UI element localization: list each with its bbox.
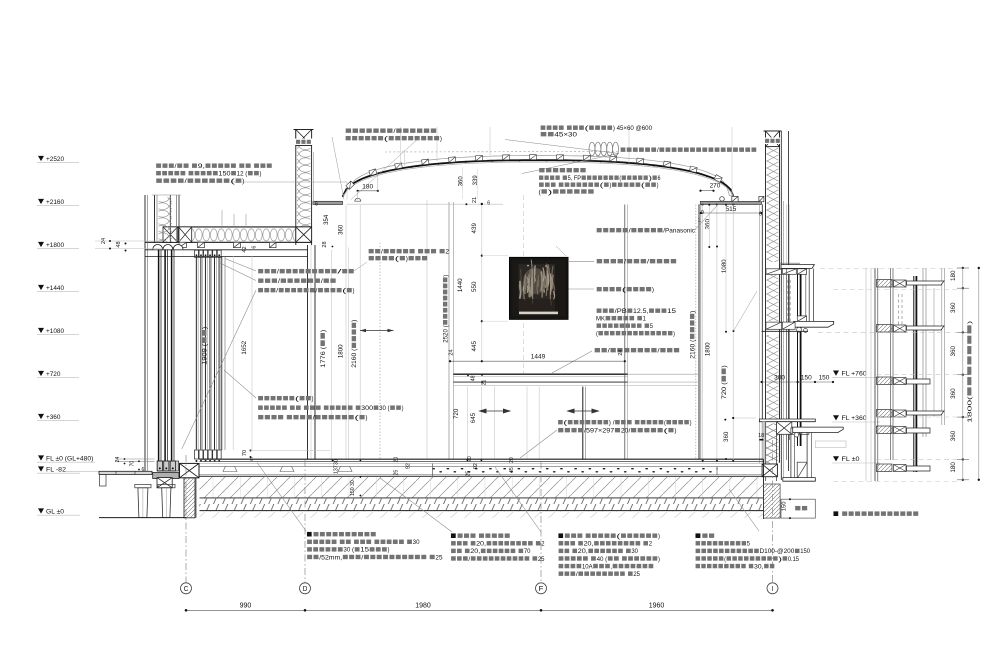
svg-text:2520 (: 2520 ( xyxy=(443,324,450,342)
svg-text:30: 30 xyxy=(631,548,638,555)
svg-text:42: 42 xyxy=(242,246,248,252)
svg-text:): ) xyxy=(968,321,974,324)
svg-text:30: 30 xyxy=(334,459,340,465)
svg-text:/597×297: /597×297 xyxy=(584,428,615,435)
svg-text:5, FP: 5, FP xyxy=(568,175,581,182)
svg-text:360: 360 xyxy=(950,430,957,441)
svg-text:/Panasonic: /Panasonic xyxy=(663,228,695,235)
svg-text:2160 (: 2160 ( xyxy=(351,348,358,368)
svg-text:MK: MK xyxy=(596,316,606,323)
svg-text:150: 150 xyxy=(801,375,812,382)
svg-text:92: 92 xyxy=(406,463,412,469)
svg-text:360: 360 xyxy=(950,302,957,313)
svg-text:/: / xyxy=(321,278,324,285)
svg-text:/: / xyxy=(175,163,177,170)
svg-text:439: 439 xyxy=(471,223,478,234)
svg-text:720 (: 720 ( xyxy=(721,381,728,399)
svg-text:): ) xyxy=(312,396,314,403)
svg-text:150: 150 xyxy=(819,375,830,382)
svg-text:): ) xyxy=(690,420,692,427)
svg-text:70: 70 xyxy=(242,450,248,456)
svg-text:300: 300 xyxy=(361,405,374,412)
svg-text:): ) xyxy=(658,533,660,540)
svg-text:12 (: 12 ( xyxy=(237,171,249,178)
svg-text:): ) xyxy=(388,547,390,554)
svg-text:): ) xyxy=(721,365,728,367)
svg-text:/: / xyxy=(647,259,650,266)
svg-text:): ) xyxy=(673,331,675,338)
svg-text:339: 339 xyxy=(473,175,479,186)
svg-text:/: / xyxy=(381,249,383,256)
svg-text:15: 15 xyxy=(360,547,370,554)
svg-text:/: / xyxy=(608,348,611,355)
svg-text:25: 25 xyxy=(435,554,443,561)
svg-text:1909 (: 1909 ( xyxy=(202,343,209,365)
svg-text:30 (: 30 ( xyxy=(379,405,390,412)
svg-text:): ) xyxy=(365,415,367,422)
svg-text:10A: 10A xyxy=(582,563,593,570)
svg-text:28: 28 xyxy=(322,241,328,247)
svg-text:): ) xyxy=(353,288,355,295)
svg-text:25: 25 xyxy=(465,471,471,477)
svg-text:354: 354 xyxy=(324,214,330,225)
svg-text:645: 645 xyxy=(470,412,477,423)
svg-text:+2520: +2520 xyxy=(46,156,64,163)
svg-text:): ) xyxy=(443,275,450,277)
svg-text:0.15: 0.15 xyxy=(788,556,800,563)
svg-text:) 45×60 @600: ) 45×60 @600 xyxy=(613,125,653,132)
svg-text:): ) xyxy=(202,327,209,329)
svg-text:1800(: 1800( xyxy=(968,396,974,422)
svg-text:15: 15 xyxy=(667,308,677,315)
svg-text:2160 (: 2160 ( xyxy=(690,339,697,359)
svg-text:30: 30 xyxy=(350,480,356,486)
svg-text:20,: 20, xyxy=(470,548,480,555)
svg-text:70: 70 xyxy=(130,461,136,467)
svg-text:360: 360 xyxy=(950,388,957,399)
svg-text:70: 70 xyxy=(524,548,531,555)
svg-text:): ) xyxy=(690,311,697,313)
svg-text:FL ±0 (GL+480): FL ±0 (GL+480) xyxy=(46,455,93,462)
svg-text:1800: 1800 xyxy=(704,342,711,356)
svg-text:/52mm,: /52mm, xyxy=(319,554,342,561)
svg-text:92: 92 xyxy=(473,463,479,469)
svg-text:C: C xyxy=(184,586,189,593)
svg-text:12.5,: 12.5, xyxy=(633,308,649,315)
svg-text:6: 6 xyxy=(487,201,490,207)
svg-text:5: 5 xyxy=(747,541,751,548)
svg-text:1: 1 xyxy=(698,218,701,224)
svg-text:550: 550 xyxy=(471,281,478,292)
svg-text:48: 48 xyxy=(116,241,122,247)
svg-text:): ) xyxy=(242,178,244,185)
svg-text:1652: 1652 xyxy=(241,340,248,354)
svg-text:40 (: 40 ( xyxy=(597,556,609,563)
svg-text:30: 30 xyxy=(413,539,420,546)
svg-text:D: D xyxy=(303,586,308,593)
svg-text:FL -82: FL -82 xyxy=(46,466,66,473)
svg-text:360: 360 xyxy=(339,224,345,235)
svg-text:+2160: +2160 xyxy=(46,199,64,206)
svg-text:9,: 9, xyxy=(198,163,206,170)
svg-text:48: 48 xyxy=(470,375,476,381)
svg-text:/: / xyxy=(277,269,279,276)
svg-text:270: 270 xyxy=(710,182,721,189)
svg-text:990: 990 xyxy=(240,603,252,610)
svg-text:/: / xyxy=(657,348,660,355)
svg-text:+1440: +1440 xyxy=(46,285,64,292)
svg-text:): ) xyxy=(320,330,327,332)
svg-text:/: / xyxy=(576,571,578,578)
svg-text:25: 25 xyxy=(394,470,400,476)
svg-text:515: 515 xyxy=(726,206,737,213)
svg-text:2: 2 xyxy=(445,249,449,256)
svg-text:FL +760: FL +760 xyxy=(842,371,868,378)
svg-text:D100-@200: D100-@200 xyxy=(759,548,794,555)
svg-text:445: 445 xyxy=(471,341,478,352)
svg-text:720: 720 xyxy=(453,408,460,419)
svg-text:6: 6 xyxy=(315,202,318,208)
svg-text:1080: 1080 xyxy=(721,259,728,273)
svg-text:20,: 20, xyxy=(584,541,594,548)
svg-text:150: 150 xyxy=(800,548,810,555)
svg-text:6: 6 xyxy=(252,246,258,249)
svg-text:9: 9 xyxy=(701,210,704,216)
svg-text:): ) xyxy=(674,428,676,435)
svg-text:360: 360 xyxy=(950,345,957,356)
svg-text:+1080: +1080 xyxy=(46,328,64,335)
svg-text:180: 180 xyxy=(950,270,957,281)
svg-text:1440: 1440 xyxy=(457,278,464,292)
svg-text:20,: 20, xyxy=(476,541,486,548)
svg-text:GL ±0: GL ±0 xyxy=(46,508,64,515)
svg-text:): ) xyxy=(648,175,652,182)
svg-text:137: 137 xyxy=(334,465,340,474)
svg-text:300: 300 xyxy=(774,375,785,382)
svg-text:180: 180 xyxy=(950,462,957,473)
svg-text:1: 1 xyxy=(643,316,647,323)
svg-text:F: F xyxy=(539,586,544,593)
svg-text:360: 360 xyxy=(723,431,730,442)
svg-text:): ) xyxy=(440,136,442,143)
svg-text:1449: 1449 xyxy=(531,354,546,361)
svg-text:): ) xyxy=(657,182,659,189)
svg-text:24: 24 xyxy=(618,349,624,355)
svg-text:24: 24 xyxy=(115,457,121,463)
svg-text:/: / xyxy=(184,178,187,185)
svg-text:/: / xyxy=(337,269,342,276)
svg-text:180: 180 xyxy=(362,183,373,190)
svg-text:,: , xyxy=(611,563,613,570)
svg-text:2: 2 xyxy=(649,541,653,548)
svg-text:360: 360 xyxy=(459,176,465,187)
svg-text:24: 24 xyxy=(448,349,454,355)
svg-text:/PB: /PB xyxy=(615,308,627,315)
svg-text:/: / xyxy=(276,288,278,295)
svg-text:/: / xyxy=(393,128,396,135)
svg-text:/: / xyxy=(278,278,281,285)
svg-text:/: / xyxy=(624,259,627,266)
svg-text:/: / xyxy=(657,147,659,154)
svg-text:/: / xyxy=(361,554,363,561)
svg-text:25: 25 xyxy=(633,571,640,578)
svg-text:): ) xyxy=(351,320,358,322)
svg-text:) /: ) / xyxy=(609,420,615,427)
svg-text:1980: 1980 xyxy=(415,603,431,610)
svg-text:20,: 20, xyxy=(578,548,588,555)
svg-text:): ) xyxy=(652,287,654,294)
svg-text:2: 2 xyxy=(541,541,545,548)
svg-text:45×30: 45×30 xyxy=(554,132,577,139)
svg-text:I: I xyxy=(772,586,774,593)
svg-text:20: 20 xyxy=(509,457,515,463)
svg-text:21: 21 xyxy=(472,197,478,203)
svg-text:25: 25 xyxy=(538,556,545,563)
svg-text:1776 (: 1776 ( xyxy=(320,346,327,368)
svg-text:): ) xyxy=(658,556,660,563)
svg-text:20/: 20/ xyxy=(621,428,631,435)
svg-text:150: 150 xyxy=(782,502,788,512)
svg-text:): ) xyxy=(548,189,553,196)
svg-text:+1800: +1800 xyxy=(46,242,64,249)
svg-text:45: 45 xyxy=(509,467,515,473)
svg-text:1800: 1800 xyxy=(338,344,345,358)
svg-text:150: 150 xyxy=(350,487,356,496)
svg-text:6: 6 xyxy=(759,212,762,218)
svg-text:6: 6 xyxy=(657,175,661,182)
svg-text:/: / xyxy=(629,228,631,235)
svg-text:+720: +720 xyxy=(46,371,61,378)
svg-text:/: / xyxy=(313,415,315,422)
svg-text:FL ±0: FL ±0 xyxy=(842,456,860,463)
svg-text:150: 150 xyxy=(218,171,231,178)
svg-text:): ) xyxy=(609,182,611,189)
svg-text:): ) xyxy=(778,556,782,563)
svg-text:20: 20 xyxy=(394,457,400,463)
svg-text:30 (: 30 ( xyxy=(343,547,355,554)
svg-text:/: / xyxy=(468,556,470,563)
svg-text:FL +360: FL +360 xyxy=(842,415,868,422)
svg-text:): ) xyxy=(402,405,404,412)
svg-text:30,: 30, xyxy=(754,563,764,570)
svg-text:): ) xyxy=(406,256,408,263)
svg-text:18: 18 xyxy=(758,433,764,439)
svg-text:1960: 1960 xyxy=(649,603,665,610)
svg-text:/: / xyxy=(315,288,317,295)
svg-text:): ) xyxy=(260,171,262,178)
svg-text:5: 5 xyxy=(650,323,654,330)
svg-text:360: 360 xyxy=(704,219,711,230)
svg-text:+360: +360 xyxy=(46,414,61,421)
